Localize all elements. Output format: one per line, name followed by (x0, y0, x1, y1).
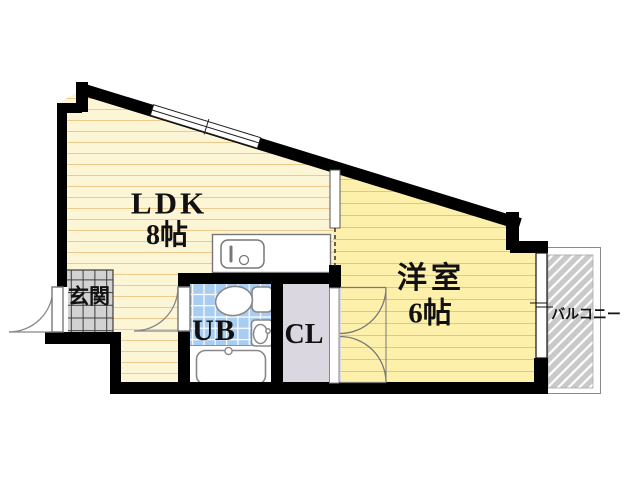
closet-opening (330, 288, 340, 383)
room-label-unit-bath: UB (192, 316, 236, 346)
room-size-ldk: 8帖 (146, 222, 188, 250)
kitchen-drain-icon (240, 256, 249, 265)
room-label-ldk: LDK (131, 188, 207, 219)
entrance-door (9, 287, 63, 332)
room-label-balcony: バルコニー (551, 307, 621, 321)
bathtub (197, 347, 266, 384)
toilet-tank (252, 287, 273, 312)
room-label-closet: CL (285, 321, 324, 349)
kitchen-counter (213, 235, 331, 273)
tub-faucet-icon (225, 347, 232, 354)
entrance-south-wall (45, 332, 121, 344)
south-wall (110, 382, 548, 394)
floor-plan-drawing (0, 0, 640, 480)
kitchen-partition-wall (178, 273, 341, 284)
room-label-entrance: 玄関 (68, 287, 110, 308)
entrance-door-leaf (52, 287, 63, 332)
room-size-western-room: 6帖 (408, 300, 452, 329)
basin-faucet-icon (266, 329, 270, 333)
entrance-door-arc (9, 288, 53, 332)
room-label-western-room: 洋室 (397, 264, 465, 294)
bath-door-leaf (178, 287, 190, 331)
washbasin (252, 320, 274, 346)
floor-plan: LDK 8帖 洋室 6帖 玄関 UB CL バルコニー (0, 0, 640, 480)
bath-closet-wall (271, 284, 283, 387)
